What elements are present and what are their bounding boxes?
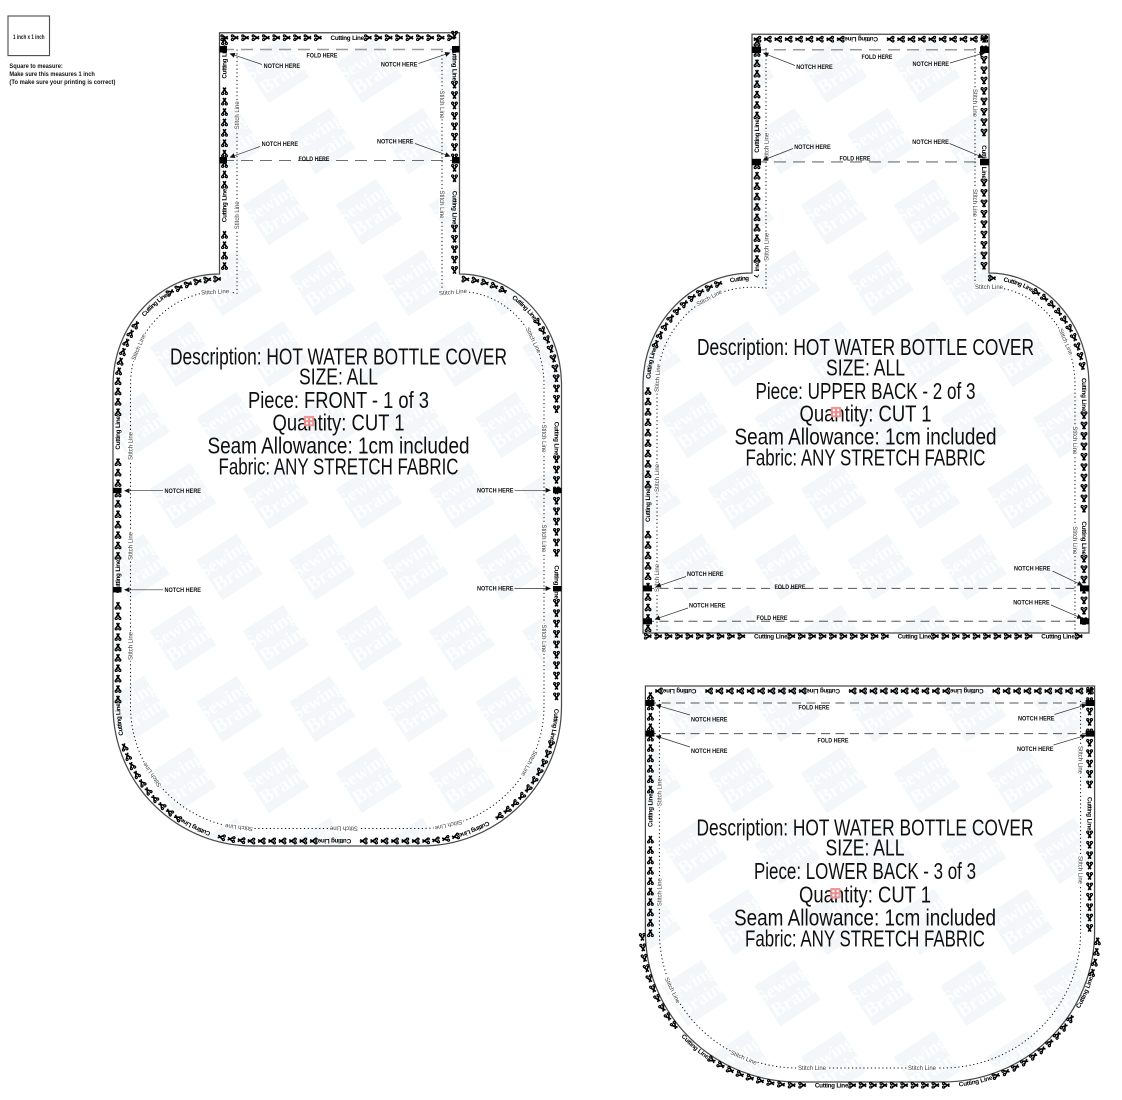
svg-text:Stitch Line: Stitch Line xyxy=(540,524,546,553)
svg-text:Piece: LOWER BACK - 3 of 3: Piece: LOWER BACK - 3 of 3 xyxy=(754,858,976,884)
svg-text:FOLD HERE: FOLD HERE xyxy=(775,584,806,591)
svg-text:e: e xyxy=(317,837,321,844)
svg-text:NOTCH HERE: NOTCH HERE xyxy=(796,64,833,71)
svg-text:NOTCH HERE: NOTCH HERE xyxy=(687,571,724,578)
svg-text:Stitch Line: Stitch Line xyxy=(658,778,664,807)
svg-text:Stitch Line: Stitch Line xyxy=(235,201,241,230)
svg-text:g: g xyxy=(115,573,122,577)
svg-text:NOTCH HERE: NOTCH HERE xyxy=(165,488,202,495)
svg-text:g: g xyxy=(1080,394,1087,398)
svg-text:g: g xyxy=(1080,538,1087,542)
svg-text:NOTCH HERE: NOTCH HERE xyxy=(377,139,414,146)
svg-text:g: g xyxy=(676,687,680,694)
svg-text:Square to measure:: Square to measure: xyxy=(9,63,62,70)
svg-text:Stitch Line: Stitch Line xyxy=(1071,526,1077,555)
svg-text:FOLD HERE: FOLD HERE xyxy=(757,615,788,622)
svg-text:Fabric: ANY STRETCH FABRIC: Fabric: ANY STRETCH FABRIC xyxy=(745,926,985,952)
svg-text:NOTCH HERE: NOTCH HERE xyxy=(262,141,299,148)
svg-text:Stitch Line: Stitch Line xyxy=(971,189,977,218)
svg-text:Stitch Line: Stitch Line xyxy=(764,132,770,161)
svg-text:Stitch Line: Stitch Line xyxy=(329,824,358,830)
svg-text:g: g xyxy=(116,716,123,721)
svg-text:g: g xyxy=(770,633,774,640)
svg-text:SIZE: ALL: SIZE: ALL xyxy=(826,355,905,381)
svg-text:Stitch Line: Stitch Line xyxy=(129,431,135,460)
svg-text:Stitch Line: Stitch Line xyxy=(798,1066,827,1072)
svg-text:g: g xyxy=(552,582,559,586)
svg-text:Stitch Line: Stitch Line xyxy=(658,878,664,907)
svg-text:Make sure this measures 1 inch: Make sure this measures 1 inch xyxy=(9,71,95,78)
svg-text:g: g xyxy=(648,807,655,811)
svg-text:Stitch Line: Stitch Line xyxy=(540,424,546,453)
svg-text:NOTCH HERE: NOTCH HERE xyxy=(1014,566,1051,573)
svg-text:g: g xyxy=(222,58,229,62)
svg-text:e: e xyxy=(754,119,761,123)
svg-text:FOLD HERE: FOLD HERE xyxy=(799,705,830,712)
svg-text:Stitch Line: Stitch Line xyxy=(908,1066,937,1072)
svg-text:NOTCH HERE: NOTCH HERE xyxy=(264,63,301,70)
svg-text:NOTCH HERE: NOTCH HERE xyxy=(913,61,950,68)
svg-text:g: g xyxy=(754,132,761,136)
svg-text:e: e xyxy=(450,221,457,225)
svg-text:Fabric: ANY STRETCH FABRIC: Fabric: ANY STRETCH FABRIC xyxy=(219,454,459,480)
svg-text:NOTCH HERE: NOTCH HERE xyxy=(1013,599,1049,606)
svg-text:Stitch Line: Stitch Line xyxy=(438,90,444,119)
svg-text:NOTCH HERE: NOTCH HERE xyxy=(1018,716,1055,723)
svg-text:Stitch Line: Stitch Line xyxy=(1071,426,1077,455)
svg-text:g: g xyxy=(115,429,122,433)
svg-text:NOTCH HERE: NOTCH HERE xyxy=(689,603,726,610)
svg-text:FOLD HERE: FOLD HERE xyxy=(862,54,893,61)
svg-text:g: g xyxy=(831,1082,835,1089)
svg-text:NOTCH HERE: NOTCH HERE xyxy=(381,61,418,68)
svg-text:Stitch Line: Stitch Line xyxy=(764,232,770,261)
svg-text:g: g xyxy=(1086,813,1093,817)
svg-text:e: e xyxy=(662,687,666,694)
svg-text:Stitch Line: Stitch Line xyxy=(540,624,546,653)
svg-text:g: g xyxy=(450,64,457,68)
svg-text:g: g xyxy=(331,837,335,844)
svg-text:NOTCH HERE: NOTCH HERE xyxy=(477,586,514,593)
svg-text:Stitch Line: Stitch Line xyxy=(975,285,1004,291)
svg-text:g: g xyxy=(450,207,457,211)
svg-text:Stitch Line: Stitch Line xyxy=(1076,746,1082,775)
svg-text:Stitch Line: Stitch Line xyxy=(971,89,977,118)
svg-text:g: g xyxy=(222,202,229,206)
svg-text:g: g xyxy=(552,438,559,442)
svg-text:FOLD HERE: FOLD HERE xyxy=(307,53,338,60)
svg-text:Stitch Line: Stitch Line xyxy=(235,101,241,130)
svg-text:g: g xyxy=(745,275,749,282)
svg-text:SIZE: ALL: SIZE: ALL xyxy=(826,835,905,861)
svg-text:NOTCH HERE: NOTCH HERE xyxy=(477,488,514,495)
svg-text:g: g xyxy=(963,687,967,694)
svg-text:g: g xyxy=(1057,633,1061,640)
svg-text:e: e xyxy=(754,262,761,266)
svg-text:NOTCH HERE: NOTCH HERE xyxy=(912,139,949,146)
svg-text:Stitch Line: Stitch Line xyxy=(655,563,661,592)
svg-text:FOLD HERE: FOLD HERE xyxy=(818,737,849,744)
svg-text:NOTCH HERE: NOTCH HERE xyxy=(691,748,728,755)
svg-text:NOTCH HERE: NOTCH HERE xyxy=(691,716,728,723)
svg-text:1 inch x 1 inch: 1 inch x 1 inch xyxy=(13,35,45,41)
svg-text:Stitch Line: Stitch Line xyxy=(655,463,661,492)
svg-text:NOTCH HERE: NOTCH HERE xyxy=(794,144,831,151)
svg-text:FOLD HERE: FOLD HERE xyxy=(840,155,871,162)
svg-text:Fabric: ANY STRETCH FABRIC: Fabric: ANY STRETCH FABRIC xyxy=(746,445,986,471)
svg-text:g: g xyxy=(858,35,862,42)
svg-text:Stitch Line: Stitch Line xyxy=(438,190,444,219)
svg-text:g: g xyxy=(645,502,652,506)
svg-text:g: g xyxy=(914,633,918,640)
svg-text:e: e xyxy=(115,703,122,707)
svg-text:e: e xyxy=(1071,633,1075,640)
svg-text:g: g xyxy=(820,687,824,694)
svg-text:SIZE: ALL: SIZE: ALL xyxy=(299,364,378,390)
svg-text:Stitch Line: Stitch Line xyxy=(129,531,135,560)
svg-text:Stitch Line: Stitch Line xyxy=(1076,856,1082,885)
svg-text:NOTCH HERE: NOTCH HERE xyxy=(1017,746,1054,753)
svg-text:Stitch Line: Stitch Line xyxy=(129,631,135,660)
svg-text:NOTCH HERE: NOTCH HERE xyxy=(165,587,202,594)
svg-text:(To make sure your printing is: (To make sure your printing is correct) xyxy=(9,79,115,86)
svg-text:FOLD HERE: FOLD HERE xyxy=(299,156,330,163)
svg-text:g: g xyxy=(347,35,351,42)
